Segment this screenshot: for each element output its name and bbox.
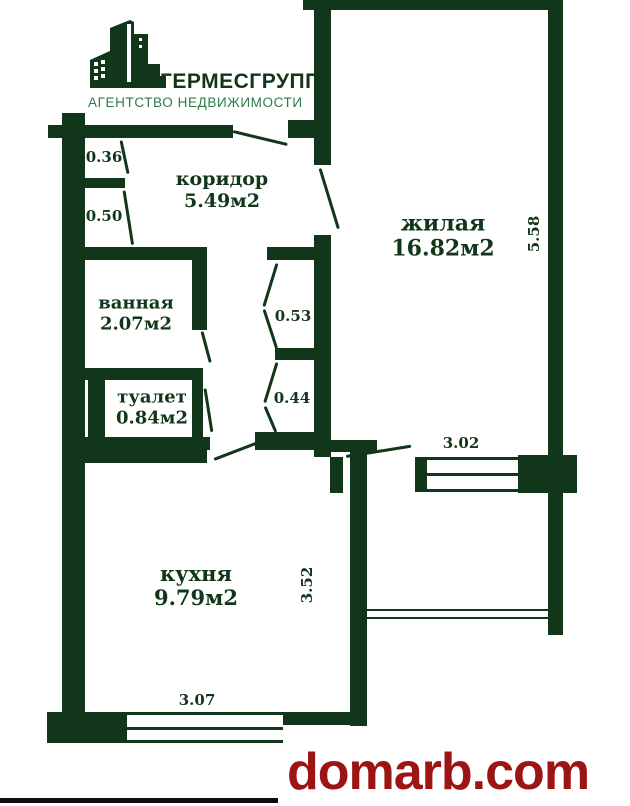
dim-3-02: 3.02: [443, 434, 480, 452]
wall-living-right: [548, 0, 563, 635]
kitchen-name: кухня: [154, 562, 238, 586]
living-door-leaf: [319, 168, 340, 229]
kitchen-window-top-line: [127, 712, 283, 715]
dim-3-52: 3.52: [298, 567, 316, 604]
kitchen-window-bottom-line: [127, 740, 283, 743]
logo-subtitle: АГЕНТСТВО НЕДВИЖИМОСТИ: [88, 95, 303, 110]
corridor-name: коридор: [176, 169, 268, 191]
wall-kitchen-top-west: [62, 450, 207, 463]
wall-kitchen-bottom-left-block: [47, 712, 127, 743]
dim-5-58: 5.58: [525, 216, 543, 253]
wall-kitchen-bottom-east: [283, 712, 367, 725]
logo-title: ГЕРМЕСГРУПП: [160, 70, 321, 94]
living-window-bottom-line: [427, 489, 518, 492]
wall-closet-divider: [85, 178, 125, 188]
label-bathroom: ванная 2.07м2: [98, 293, 173, 334]
kitchen-door-leaf: [213, 441, 258, 461]
floor-plan: ГЕРМЕСГРУПП АГЕНТСТВО НЕДВИЖИМОСТИ: [0, 0, 630, 806]
closet-050-door-leaf: [123, 190, 135, 245]
wall-window-right-block: [518, 455, 577, 493]
living-window-top-line: [427, 457, 518, 460]
dim-0-53: 0.53: [275, 307, 312, 325]
bathroom-area: 2.07м2: [98, 314, 173, 335]
loggia-rail-line-1: [367, 609, 548, 611]
buildings-icon: [86, 18, 168, 96]
toilet-name: туалет: [116, 387, 188, 408]
toilet-area: 0.84м2: [116, 408, 188, 429]
label-kitchen: кухня 9.79м2: [154, 562, 238, 610]
dim-0-50: 0.50: [86, 207, 123, 225]
wall-corridor-bottom-east: [255, 432, 331, 450]
living-name: жилая: [391, 212, 494, 237]
wall-living-top: [303, 0, 563, 10]
wall-left-outer: [62, 113, 85, 713]
wall-niche-top-stub: [267, 247, 315, 260]
wall-bathroom-right: [192, 260, 207, 330]
wall-living-left-lower: [314, 235, 331, 457]
label-living: жилая 16.82м2: [391, 212, 494, 263]
living-window-mid-line: [427, 473, 518, 476]
toilet-door-leaf: [204, 388, 214, 432]
wall-niche-mid-stub: [275, 348, 315, 360]
bathroom-name: ванная: [98, 293, 173, 314]
wall-balcony-door-jamb: [330, 457, 343, 493]
label-corridor: коридор 5.49м2: [176, 169, 268, 213]
label-toilet: туалет 0.84м2: [116, 387, 188, 428]
wall-window-left-bar: [415, 457, 427, 492]
wall-bathroom-bottom: [83, 368, 203, 380]
dim-0-44: 0.44: [274, 389, 311, 407]
niche-044-leaf-lower: [264, 406, 278, 433]
bottom-black-line: [0, 798, 278, 803]
wall-toilet-bottom: [83, 437, 210, 450]
entry-door-leaf: [233, 130, 288, 146]
wall-living-left-upper: [314, 10, 331, 165]
living-area: 16.82м2: [391, 237, 494, 262]
watermark-text: domarb.com: [287, 742, 589, 802]
dim-3-07: 3.07: [179, 691, 216, 709]
wall-toilet-right: [192, 380, 203, 437]
niche-053-leaf-upper: [262, 263, 278, 307]
corridor-area: 5.49м2: [176, 191, 268, 213]
agency-logo: ГЕРМЕСГРУПП АГЕНТСТВО НЕДВИЖИМОСТИ: [86, 18, 326, 100]
wall-kitchen-right: [350, 452, 367, 726]
dim-0-36: 0.36: [86, 148, 123, 166]
wall-bathroom-top: [85, 247, 207, 260]
kitchen-window-mid-line: [127, 727, 283, 730]
kitchen-area: 9.79м2: [154, 586, 238, 610]
loggia-rail-line-2: [367, 617, 548, 619]
wall-entry-stub: [288, 120, 315, 138]
bathroom-door-leaf: [201, 331, 212, 363]
wall-toilet-left: [88, 380, 105, 437]
